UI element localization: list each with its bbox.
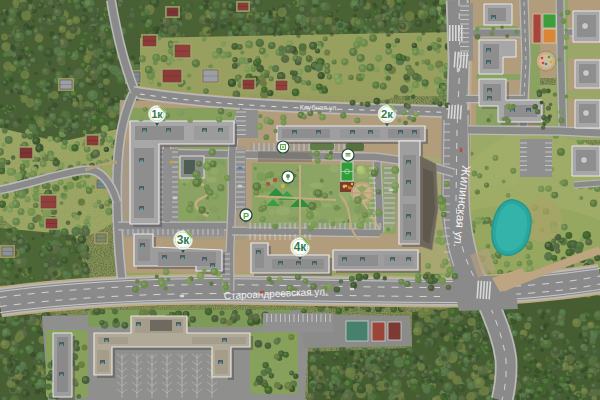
svg-text:3к: 3к <box>177 233 190 247</box>
svg-text:Р: Р <box>243 211 249 221</box>
svg-text:2к: 2к <box>381 108 393 120</box>
svg-text:1к: 1к <box>151 108 163 120</box>
svg-text:4к: 4к <box>294 240 307 254</box>
